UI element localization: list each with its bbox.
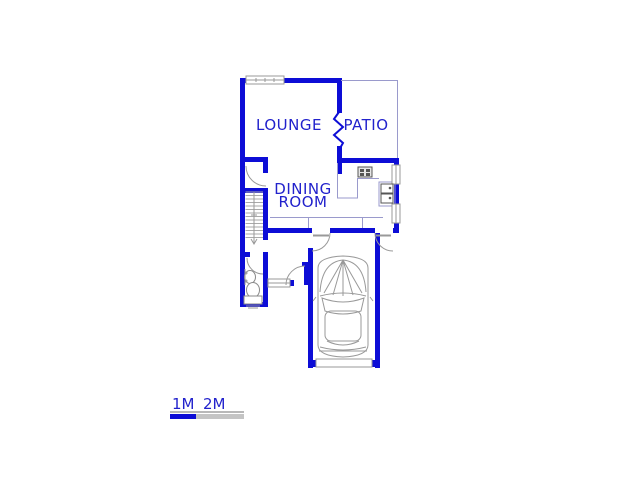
window-icon [392,204,400,223]
wall-segment [263,160,268,173]
lounge-label: LOUNGE [256,116,322,134]
car-icon [313,256,373,357]
scale-segment-gray [196,414,244,419]
dining-room-label-line2: ROOM [279,193,328,211]
garage-door-icon [316,359,372,367]
wall-segment [393,228,399,233]
door-leaf [304,262,309,285]
wall-segment [263,190,268,240]
wall-segment [263,252,268,258]
room-labels: LOUNGE PATIO DINING ROOM [256,116,389,211]
scale-bar: 1M 2M [170,395,244,419]
window-icon [392,165,400,184]
staircase-icon [246,192,264,244]
scale-underline [170,411,244,413]
wall-segment [337,158,399,163]
counter-line [270,217,383,228]
wall-break-icon [334,112,343,150]
window-icon [246,76,284,84]
wall-segment [268,228,312,233]
floor-plan-svg: LOUNGE PATIO DINING ROOM 1M 2M [0,0,640,480]
garage-right-wall [375,233,380,368]
wall-segment [263,258,268,307]
toilet-icon [244,283,262,309]
scale-2m-label: 2M [203,395,226,413]
scale-1m-label: 1M [172,395,195,413]
wall-segment [337,78,342,113]
floor-plan-page: LOUNGE PATIO DINING ROOM 1M 2M [0,0,640,480]
wall-segment [240,252,250,257]
patio-label: PATIO [343,116,388,134]
wall-segment [330,228,375,233]
scale-segment-blue [170,414,196,419]
stove-icon [358,167,372,177]
kitchen-sink-icon [381,184,393,203]
